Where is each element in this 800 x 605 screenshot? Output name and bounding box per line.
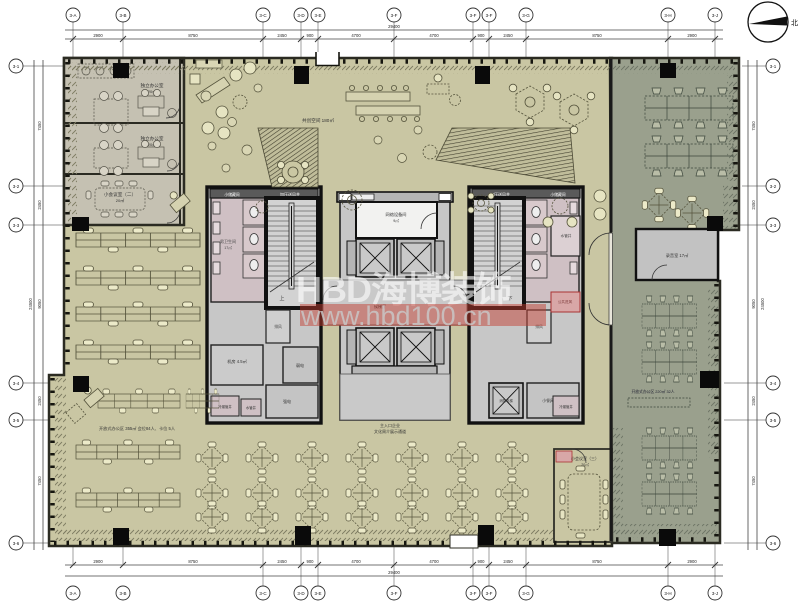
svg-text:8750: 8750 [592,33,602,38]
svg-text:3-2: 3-2 [770,184,777,189]
svg-text:9050: 9050 [751,299,756,309]
svg-text:900: 900 [478,33,486,38]
svg-text:水管井: 水管井 [561,233,572,238]
svg-text:网络设备间: 网络设备间 [386,211,407,218]
svg-text:2450: 2450 [751,396,756,406]
svg-text:3-4: 3-4 [13,381,20,386]
svg-text:3-5: 3-5 [13,418,20,423]
svg-text:共创空间 180㎡: 共创空间 180㎡ [302,117,334,124]
svg-text:20㎡: 20㎡ [116,197,124,203]
svg-text:3-4: 3-4 [770,381,777,386]
svg-text:3-B: 3-B [119,591,126,596]
svg-text:2450: 2450 [37,396,42,406]
svg-text:小餐具: 小餐具 [542,398,554,403]
svg-text:录音室 17㎡: 录音室 17㎡ [666,252,689,259]
svg-text:3-1: 3-1 [770,64,777,69]
svg-text:3-5: 3-5 [770,418,777,423]
svg-text:17㎡: 17㎡ [224,245,232,250]
svg-text:3-G: 3-G [522,591,530,596]
svg-text:2900: 2900 [687,559,697,564]
svg-text:9050: 9050 [37,299,42,309]
svg-text:3-C: 3-C [259,13,267,18]
svg-text:北: 北 [791,19,798,27]
svg-text:2450: 2450 [277,33,287,38]
svg-text:小会议室（二）: 小会议室（二） [104,191,136,198]
svg-text:4700: 4700 [351,559,361,564]
svg-text:8750: 8750 [188,559,198,564]
svg-text:4700: 4700 [351,33,361,38]
svg-text:3-3: 3-3 [13,223,20,228]
svg-text:3-2: 3-2 [13,184,20,189]
svg-text:冷媒管井: 冷媒管井 [218,404,232,409]
svg-text:2450: 2450 [751,200,756,210]
svg-text:3-F: 3-F [391,591,398,596]
svg-text:29400: 29400 [388,24,400,29]
svg-text:3-F: 3-F [391,13,398,18]
svg-text:3-1: 3-1 [13,64,20,69]
svg-text:3-E: 3-E [314,13,321,18]
svg-text:3-D: 3-D [297,591,305,596]
svg-text:开放式办公区 220㎡ 32人: 开放式办公区 220㎡ 32人 [631,389,674,394]
svg-text:8750: 8750 [592,559,602,564]
svg-text:2900: 2900 [93,559,103,564]
svg-text:上: 上 [279,295,284,302]
svg-text:3-G: 3-G [522,13,530,18]
svg-text:公共进风: 公共进风 [558,299,573,304]
svg-text:www.hbd100.cn: www.hbd100.cn [300,301,492,331]
svg-text:7450: 7450 [751,121,756,131]
svg-text:4700: 4700 [429,559,439,564]
svg-text:3-F: 3-F [470,13,477,18]
svg-text:2900: 2900 [687,33,697,38]
svg-text:3-A: 3-A [69,13,76,18]
svg-text:2450: 2450 [503,559,513,564]
svg-text:9㎡: 9㎡ [393,218,399,223]
svg-text:7450: 7450 [37,121,42,131]
svg-text:3-E: 3-E [314,591,321,596]
svg-text:3-F: 3-F [486,13,493,18]
svg-text:3-F: 3-F [486,591,493,596]
svg-text:文化周介展示通道: 文化周介展示通道 [374,428,406,434]
svg-text:24500: 24500 [28,298,33,310]
svg-text:900: 900 [307,33,315,38]
svg-text:3-J: 3-J [712,591,718,596]
svg-text:2450: 2450 [503,33,513,38]
svg-text:3-6: 3-6 [770,541,777,546]
svg-text:3-F: 3-F [470,591,477,596]
svg-text:2450: 2450 [277,559,287,564]
svg-text:机房 4.5㎡: 机房 4.5㎡ [227,358,247,365]
svg-text:排风: 排风 [274,324,282,329]
svg-text:3-H: 3-H [664,591,671,596]
svg-text:3-H: 3-H [664,13,671,18]
svg-text:小储藏间: 小储藏间 [550,192,565,197]
svg-text:水管井: 水管井 [246,405,257,410]
svg-text:4700: 4700 [429,33,439,38]
svg-text:8750: 8750 [188,33,198,38]
svg-text:独立办公室: 独立办公室 [141,82,164,89]
svg-text:3-C: 3-C [259,591,267,596]
svg-text:3-6: 3-6 [13,541,20,546]
svg-text:2450: 2450 [37,200,42,210]
svg-text:小储藏间: 小储藏间 [224,192,239,197]
svg-text:3-3: 3-3 [770,223,777,228]
svg-text:开放式办公区 355㎡ 会位84人、卡位 5人: 开放式办公区 355㎡ 会位84人、卡位 5人 [99,425,176,432]
svg-text:7450: 7450 [37,476,42,486]
svg-text:7450: 7450 [751,476,756,486]
svg-text:24500: 24500 [760,298,765,310]
svg-text:男卫生间: 男卫生间 [220,238,236,244]
svg-text:3-D: 3-D [297,13,305,18]
svg-text:3-A: 3-A [69,591,76,596]
svg-text:29400: 29400 [388,570,400,575]
svg-text:主入口企业: 主入口企业 [380,422,400,428]
svg-text:冷媒管井: 冷媒管井 [559,404,573,409]
svg-text:900: 900 [307,559,315,564]
svg-text:强电: 强电 [283,398,291,404]
svg-text:弱电: 弱电 [296,362,304,368]
svg-text:3-B: 3-B [119,13,126,18]
svg-text:消防电梯: 消防电梯 [499,398,513,403]
svg-text:2900: 2900 [93,33,103,38]
svg-text:3-J: 3-J [712,13,718,18]
svg-text:900: 900 [478,559,486,564]
